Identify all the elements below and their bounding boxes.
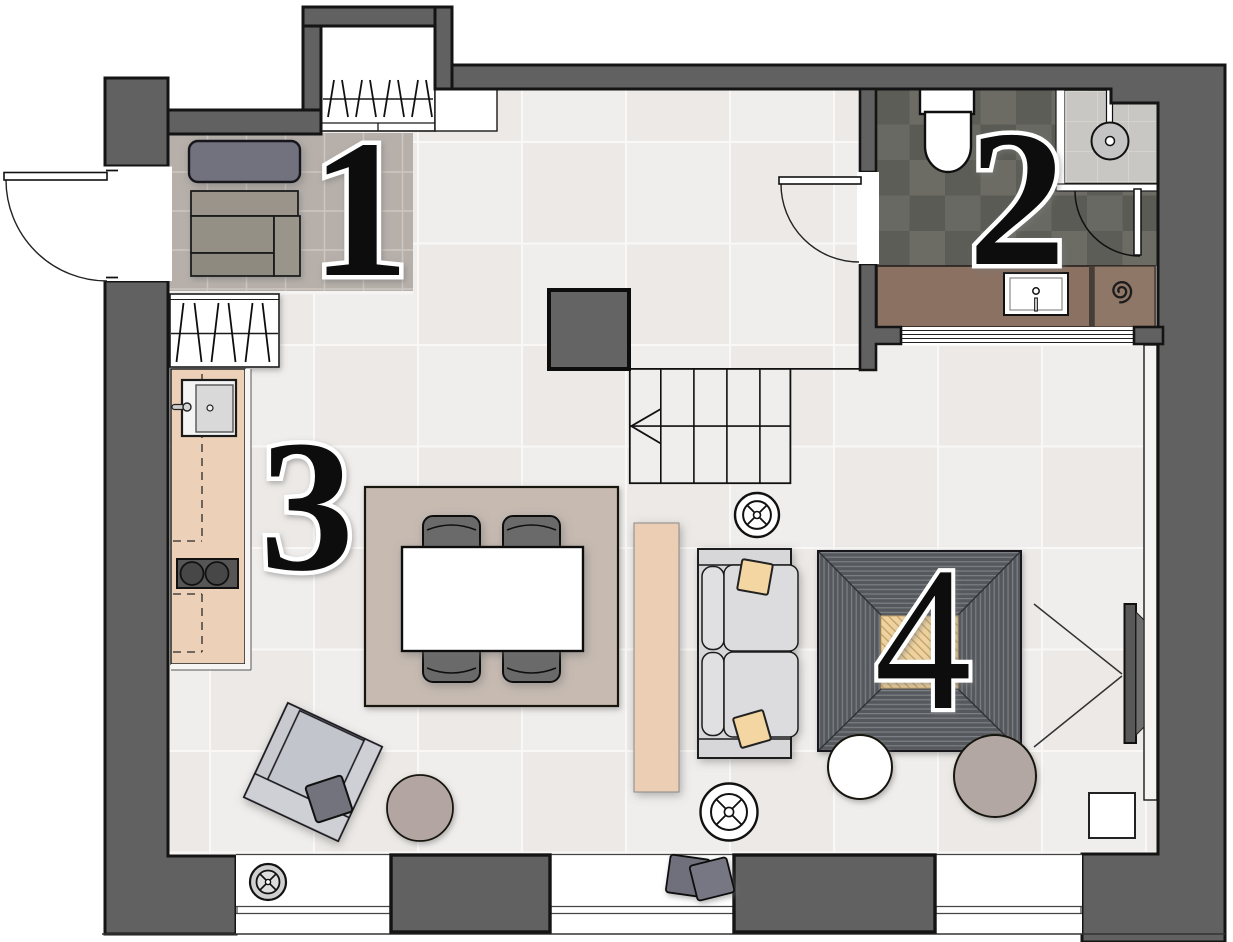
svg-text:2: 2 <box>968 91 1066 307</box>
svg-text:4: 4 <box>875 524 972 753</box>
svg-text:3: 3 <box>260 401 354 610</box>
svg-text:1: 1 <box>311 99 410 318</box>
